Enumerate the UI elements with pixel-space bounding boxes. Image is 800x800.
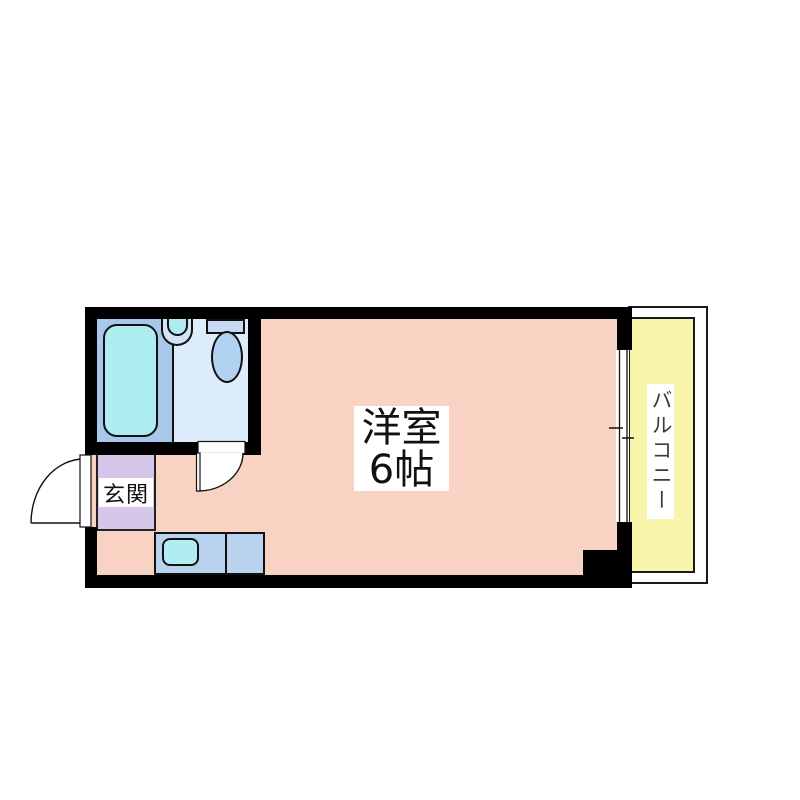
wall-left-lower	[85, 527, 97, 588]
balcony-label-text: バルコニー	[647, 389, 674, 514]
main-room-name: 洋室	[362, 407, 442, 449]
wall-corner-step	[583, 550, 632, 588]
entrance-door-icon	[31, 455, 91, 527]
entrance-label-text: 玄関	[103, 477, 149, 509]
entrance-label: 玄関	[99, 478, 153, 507]
bathtub-icon	[103, 324, 158, 437]
balcony-label: バルコニー	[647, 384, 674, 519]
wall-top	[85, 307, 632, 319]
wall-right-upper	[617, 307, 632, 350]
kitchen-counter-divider	[225, 532, 227, 575]
kitchen-sink-icon	[162, 538, 199, 566]
main-room-label: 洋室 6帖	[354, 406, 449, 491]
wall-left-upper	[85, 307, 97, 455]
main-room-size: 6帖	[369, 449, 434, 491]
floorplan-canvas: 洋室 6帖 玄関 バルコニー	[0, 0, 800, 800]
wall-bottom	[85, 575, 632, 588]
wall-bathroom-right	[248, 307, 261, 455]
wall-bathroom-bottom	[97, 442, 248, 455]
toilet-icon	[211, 331, 243, 383]
